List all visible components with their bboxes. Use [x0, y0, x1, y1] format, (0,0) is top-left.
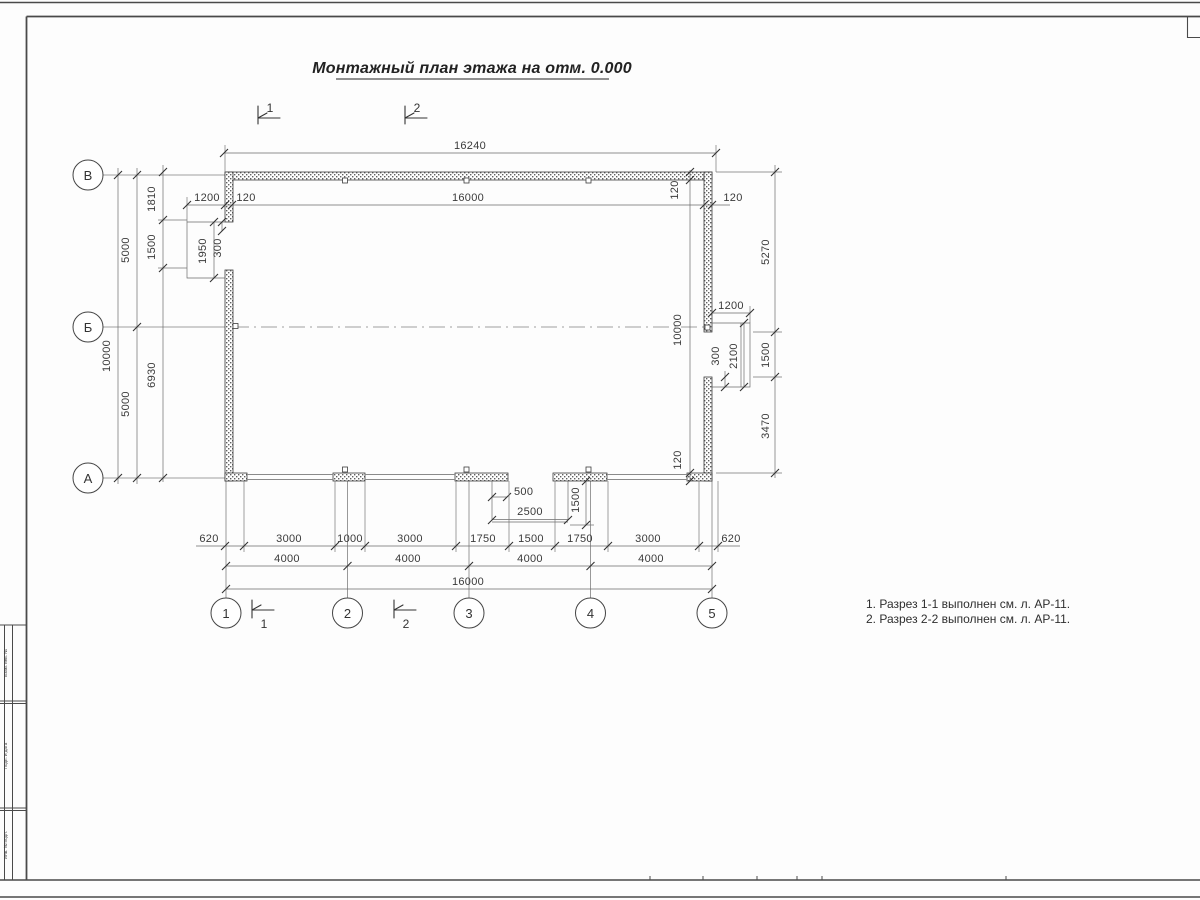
dimensions-top: 16240 1200 120 16000 120 — [183, 140, 743, 222]
dim-left-5000-upper: 5000 — [120, 237, 132, 263]
frame-stamp-label-2: Подп. и дата — [3, 742, 8, 769]
dim-left-1810: 1810 — [146, 186, 158, 212]
dim-bottom-16000: 16000 — [452, 576, 484, 588]
frame-stamp-label-3: Инв. № подл. — [3, 831, 8, 859]
top-extension-lines — [187, 145, 716, 222]
dimensions-bottom: 620 3000 1000 3000 1750 1500 1750 3000 6… — [196, 481, 741, 593]
plate-top-1 — [343, 178, 348, 183]
section-label-2-top: 2 — [414, 101, 421, 115]
dim-b1: 620 — [199, 533, 218, 545]
dim-b3: 1000 — [337, 533, 363, 545]
wall-bottom-pier-4 — [553, 473, 607, 481]
left-extension-lines — [158, 220, 187, 268]
embedded-plate-markers — [233, 178, 710, 472]
left-chain-lines — [118, 165, 163, 484]
plate-top-2 — [464, 178, 469, 183]
dim-left-5000-lower: 5000 — [120, 391, 132, 417]
plate-top-3 — [586, 178, 591, 183]
dim-s4: 4000 — [638, 553, 664, 565]
section-label-1-top: 1 — [267, 101, 274, 115]
dim-axis-width: 16000 — [452, 192, 484, 204]
drawing-title: Монтажный план этажа на отм. 0.000 — [312, 60, 632, 77]
dim-s1: 4000 — [274, 553, 300, 565]
sheet-frame: Взам. инв. № Подп. и дата Инв. № подл. — [0, 3, 1200, 898]
grid-label-1: 1 — [222, 606, 229, 621]
dim-overall-width: 16240 — [454, 140, 486, 152]
dim-top-120-right: 120 — [723, 192, 742, 204]
dim-right-120-bottom: 120 — [672, 450, 684, 469]
dim-recess-1500: 1500 — [570, 487, 582, 513]
plate-bottom-3 — [586, 467, 591, 472]
frame-stamp-label-1: Взам. инв. № — [3, 649, 8, 677]
axis-label-b: Б — [84, 320, 93, 335]
grid-label-4: 4 — [587, 606, 594, 621]
dim-b5: 1750 — [470, 533, 496, 545]
left-chain-ticks — [114, 168, 167, 482]
wall-bottom-pier-3 — [455, 473, 508, 481]
section-arrow-1-bottom — [252, 600, 274, 618]
dim-b8: 3000 — [635, 533, 661, 545]
dim-top-1200: 1200 — [194, 192, 220, 204]
section-arrow-2-bottom — [394, 600, 416, 618]
plate-right-niche — [705, 325, 710, 330]
wall-right-upper — [704, 172, 712, 332]
plate-bottom-2 — [464, 467, 469, 472]
grid-label-5: 5 — [708, 606, 715, 621]
note-line-1: 1. Разрез 1-1 выполнен см. л. АР-11. — [866, 597, 1070, 611]
dim-left-10000: 10000 — [101, 340, 113, 372]
dim-right-10000: 10000 — [672, 314, 684, 346]
dim-left-1500: 1500 — [146, 234, 158, 260]
dim-left-6930: 6930 — [146, 362, 158, 388]
dim-niche-right-300: 300 — [710, 346, 722, 365]
dim-b7: 1750 — [567, 533, 593, 545]
wall-right-lower — [704, 377, 712, 481]
plate-left-axis-b — [233, 324, 238, 329]
wall-bottom-pier-2 — [333, 473, 365, 481]
dim-top-120-left: 120 — [236, 192, 255, 204]
frame-corner-box — [1188, 17, 1200, 38]
dim-niche-right-1200: 1200 — [718, 300, 744, 312]
dim-niche-left-1950: 1950 — [197, 238, 209, 264]
dim-recess-2500: 2500 — [517, 506, 543, 518]
dim-b9: 620 — [721, 533, 740, 545]
dim-b2: 3000 — [276, 533, 302, 545]
wall-left-lower — [225, 270, 233, 481]
dim-s2: 4000 — [395, 553, 421, 565]
dim-right-5270: 5270 — [760, 239, 772, 265]
drawing-title-group: Монтажный план этажа на отм. 0.000 — [312, 60, 632, 79]
dim-recess-500: 500 — [514, 486, 533, 498]
dimensions-recess: 500 2500 1500 — [488, 477, 590, 529]
dim-b6: 1500 — [518, 533, 544, 545]
dim-b4: 3000 — [397, 533, 423, 545]
dim-niche-left-300: 300 — [212, 238, 224, 257]
dim-right-1500: 1500 — [760, 342, 772, 368]
dim-s3: 4000 — [517, 553, 543, 565]
floor-plan-walls — [187, 172, 750, 522]
grid-label-3: 3 — [465, 606, 472, 621]
section-label-1-bottom: 1 — [261, 617, 268, 631]
section-marks: 1 2 1 2 — [252, 101, 427, 631]
section-label-2-bottom: 2 — [403, 617, 410, 631]
plate-bottom-1 — [343, 467, 348, 472]
axis-label-a: А — [84, 471, 93, 486]
dimensions-left: 10000 5000 5000 1810 1500 6930 1950 300 — [101, 165, 226, 484]
grid-label-2: 2 — [344, 606, 351, 621]
notes: 1. Разрез 1-1 выполнен см. л. АР-11. 2. … — [866, 597, 1070, 626]
dim-right-120-top: 120 — [669, 180, 681, 199]
axis-label-v: В — [84, 168, 93, 183]
wall-bottom-pier-1 — [225, 473, 247, 481]
dim-right-3470: 3470 — [760, 413, 772, 439]
wall-left-upper — [225, 172, 233, 222]
note-line-2: 2. Разрез 2-2 выполнен см. л. АР-11. — [866, 612, 1070, 626]
drawing-sheet: Взам. инв. № Подп. и дата Инв. № подл. М… — [0, 0, 1200, 900]
dim-niche-right-2100: 2100 — [728, 343, 740, 369]
